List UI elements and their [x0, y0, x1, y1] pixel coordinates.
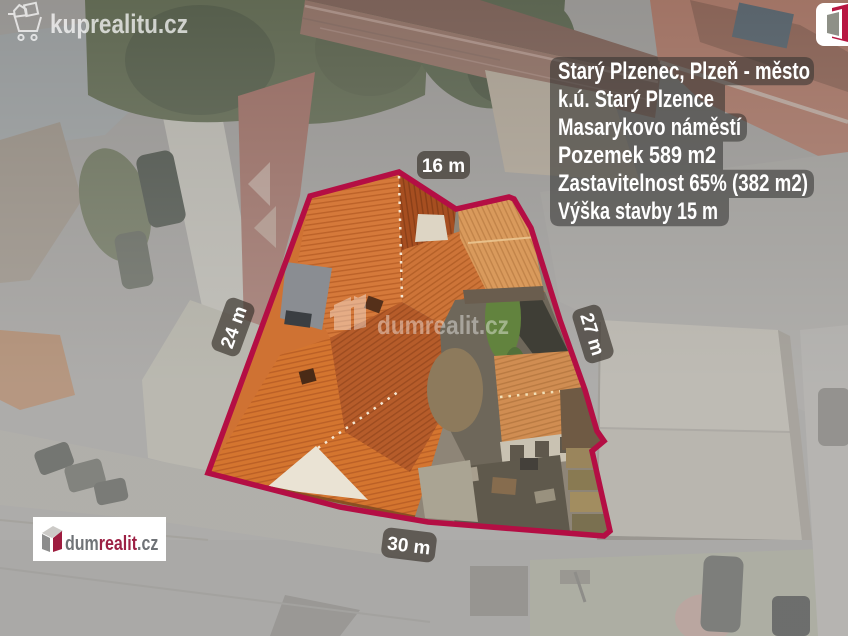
- svg-text:Výška stavby 15 m: Výška stavby 15 m: [558, 198, 718, 225]
- svg-text:Starý Plzenec, Plzeň - město: Starý Plzenec, Plzeň - město: [558, 58, 810, 85]
- svg-text:dumrealit.cz: dumrealit.cz: [65, 532, 158, 554]
- svg-text:kuprealitu.cz: kuprealitu.cz: [50, 9, 188, 39]
- svg-text:k.ú. Starý Plzence: k.ú. Starý Plzence: [558, 86, 714, 113]
- svg-text:16 m: 16 m: [422, 156, 465, 177]
- svg-text:dumrealit.cz: dumrealit.cz: [377, 310, 509, 340]
- svg-text:Masarykovo náměstí: Masarykovo náměstí: [558, 114, 742, 141]
- svg-text:Zastavitelnost 65% (382 m2): Zastavitelnost 65% (382 m2): [558, 170, 808, 197]
- svg-text:Pozemek 589 m2: Pozemek 589 m2: [558, 142, 716, 169]
